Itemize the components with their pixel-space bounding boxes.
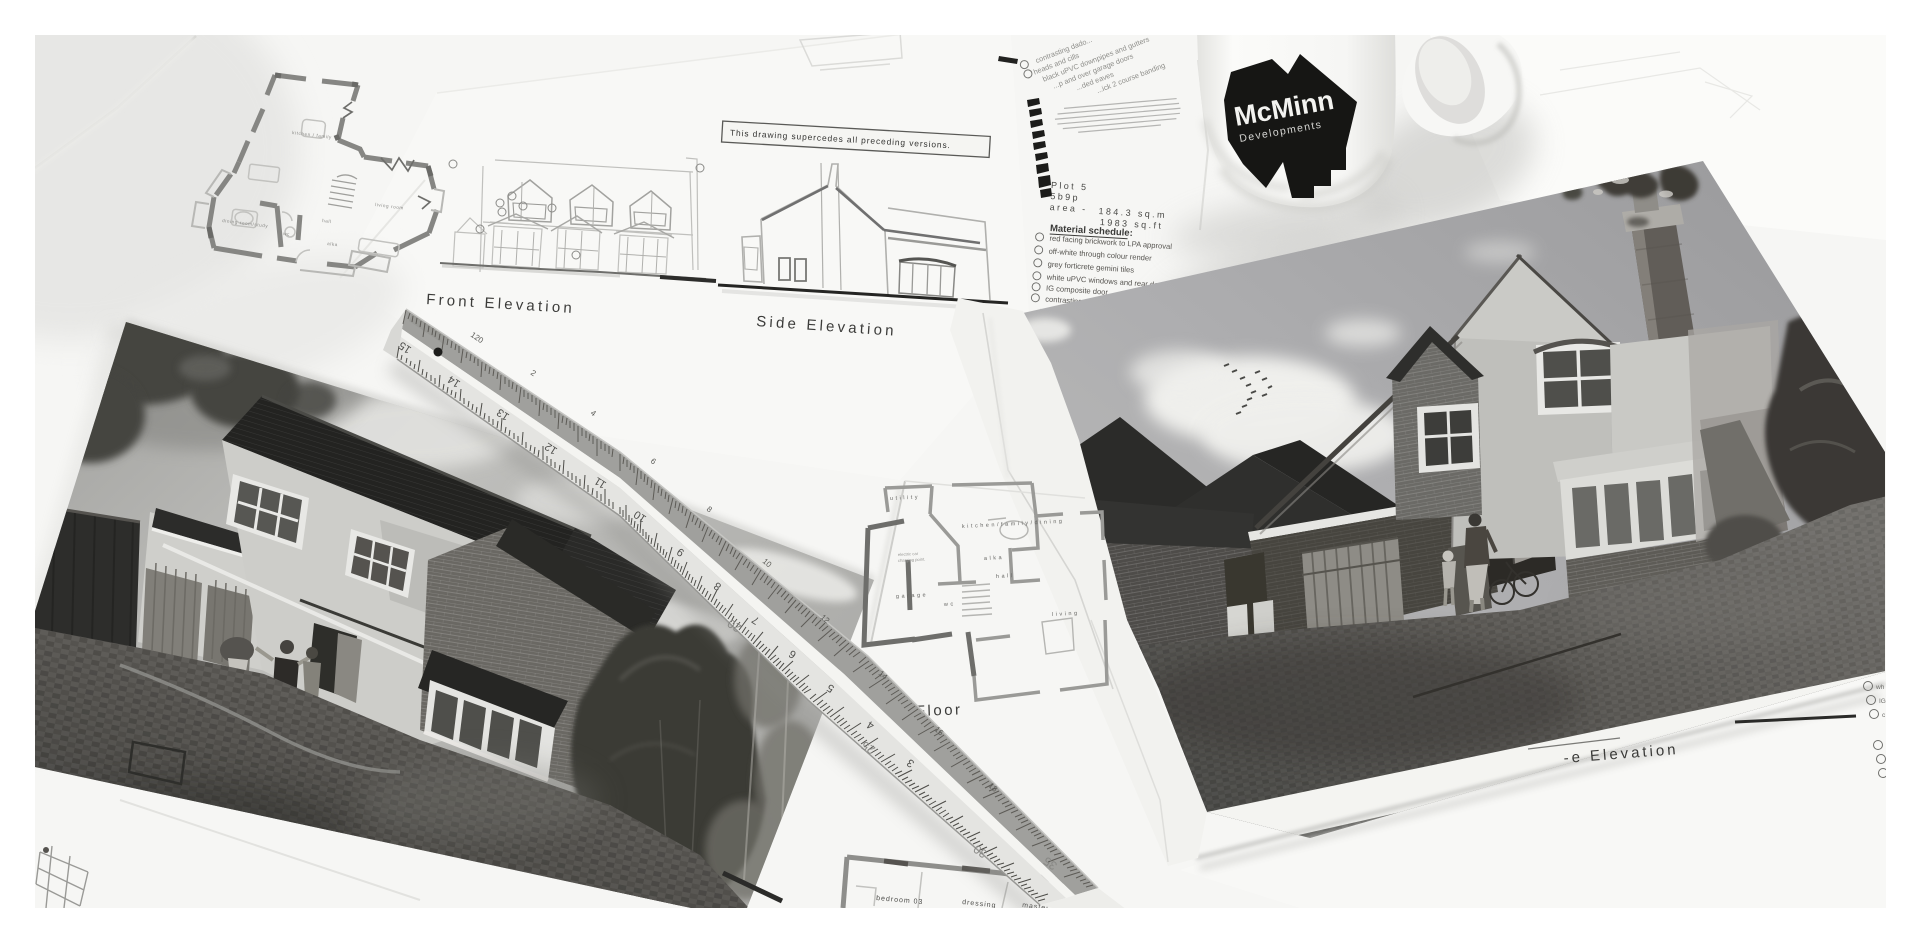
svg-text:wh: wh <box>1875 684 1885 691</box>
svg-text:h a l l: h a l l <box>996 573 1013 580</box>
svg-text:IG: IG <box>1879 698 1886 705</box>
svg-text:w c: w c <box>943 601 954 608</box>
svg-text:wc: wc <box>283 231 290 237</box>
svg-text:a l k a: a l k a <box>984 555 1003 562</box>
svg-text:5b9p: 5b9p <box>1050 191 1080 203</box>
